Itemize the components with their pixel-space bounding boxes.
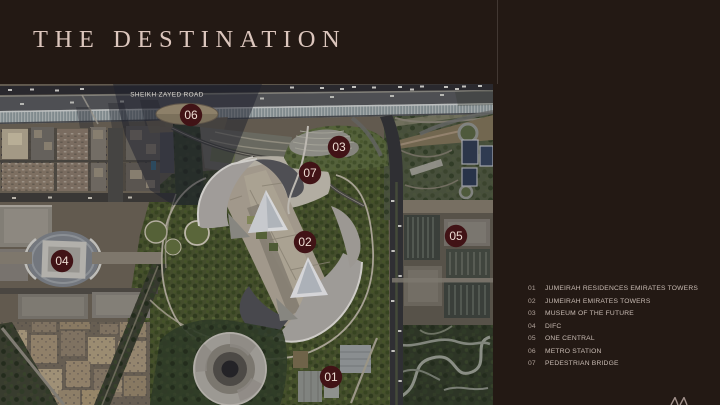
svg-text:03: 03: [332, 140, 346, 154]
svg-text:04: 04: [55, 254, 69, 268]
svg-text:SHEIKH ZAYED ROAD: SHEIKH ZAYED ROAD: [130, 92, 203, 99]
svg-text:02: 02: [298, 235, 312, 249]
svg-text:06: 06: [184, 108, 198, 122]
svg-text:05: 05: [449, 229, 463, 243]
svg-text:07: 07: [303, 166, 317, 180]
svg-text:01: 01: [324, 370, 338, 384]
